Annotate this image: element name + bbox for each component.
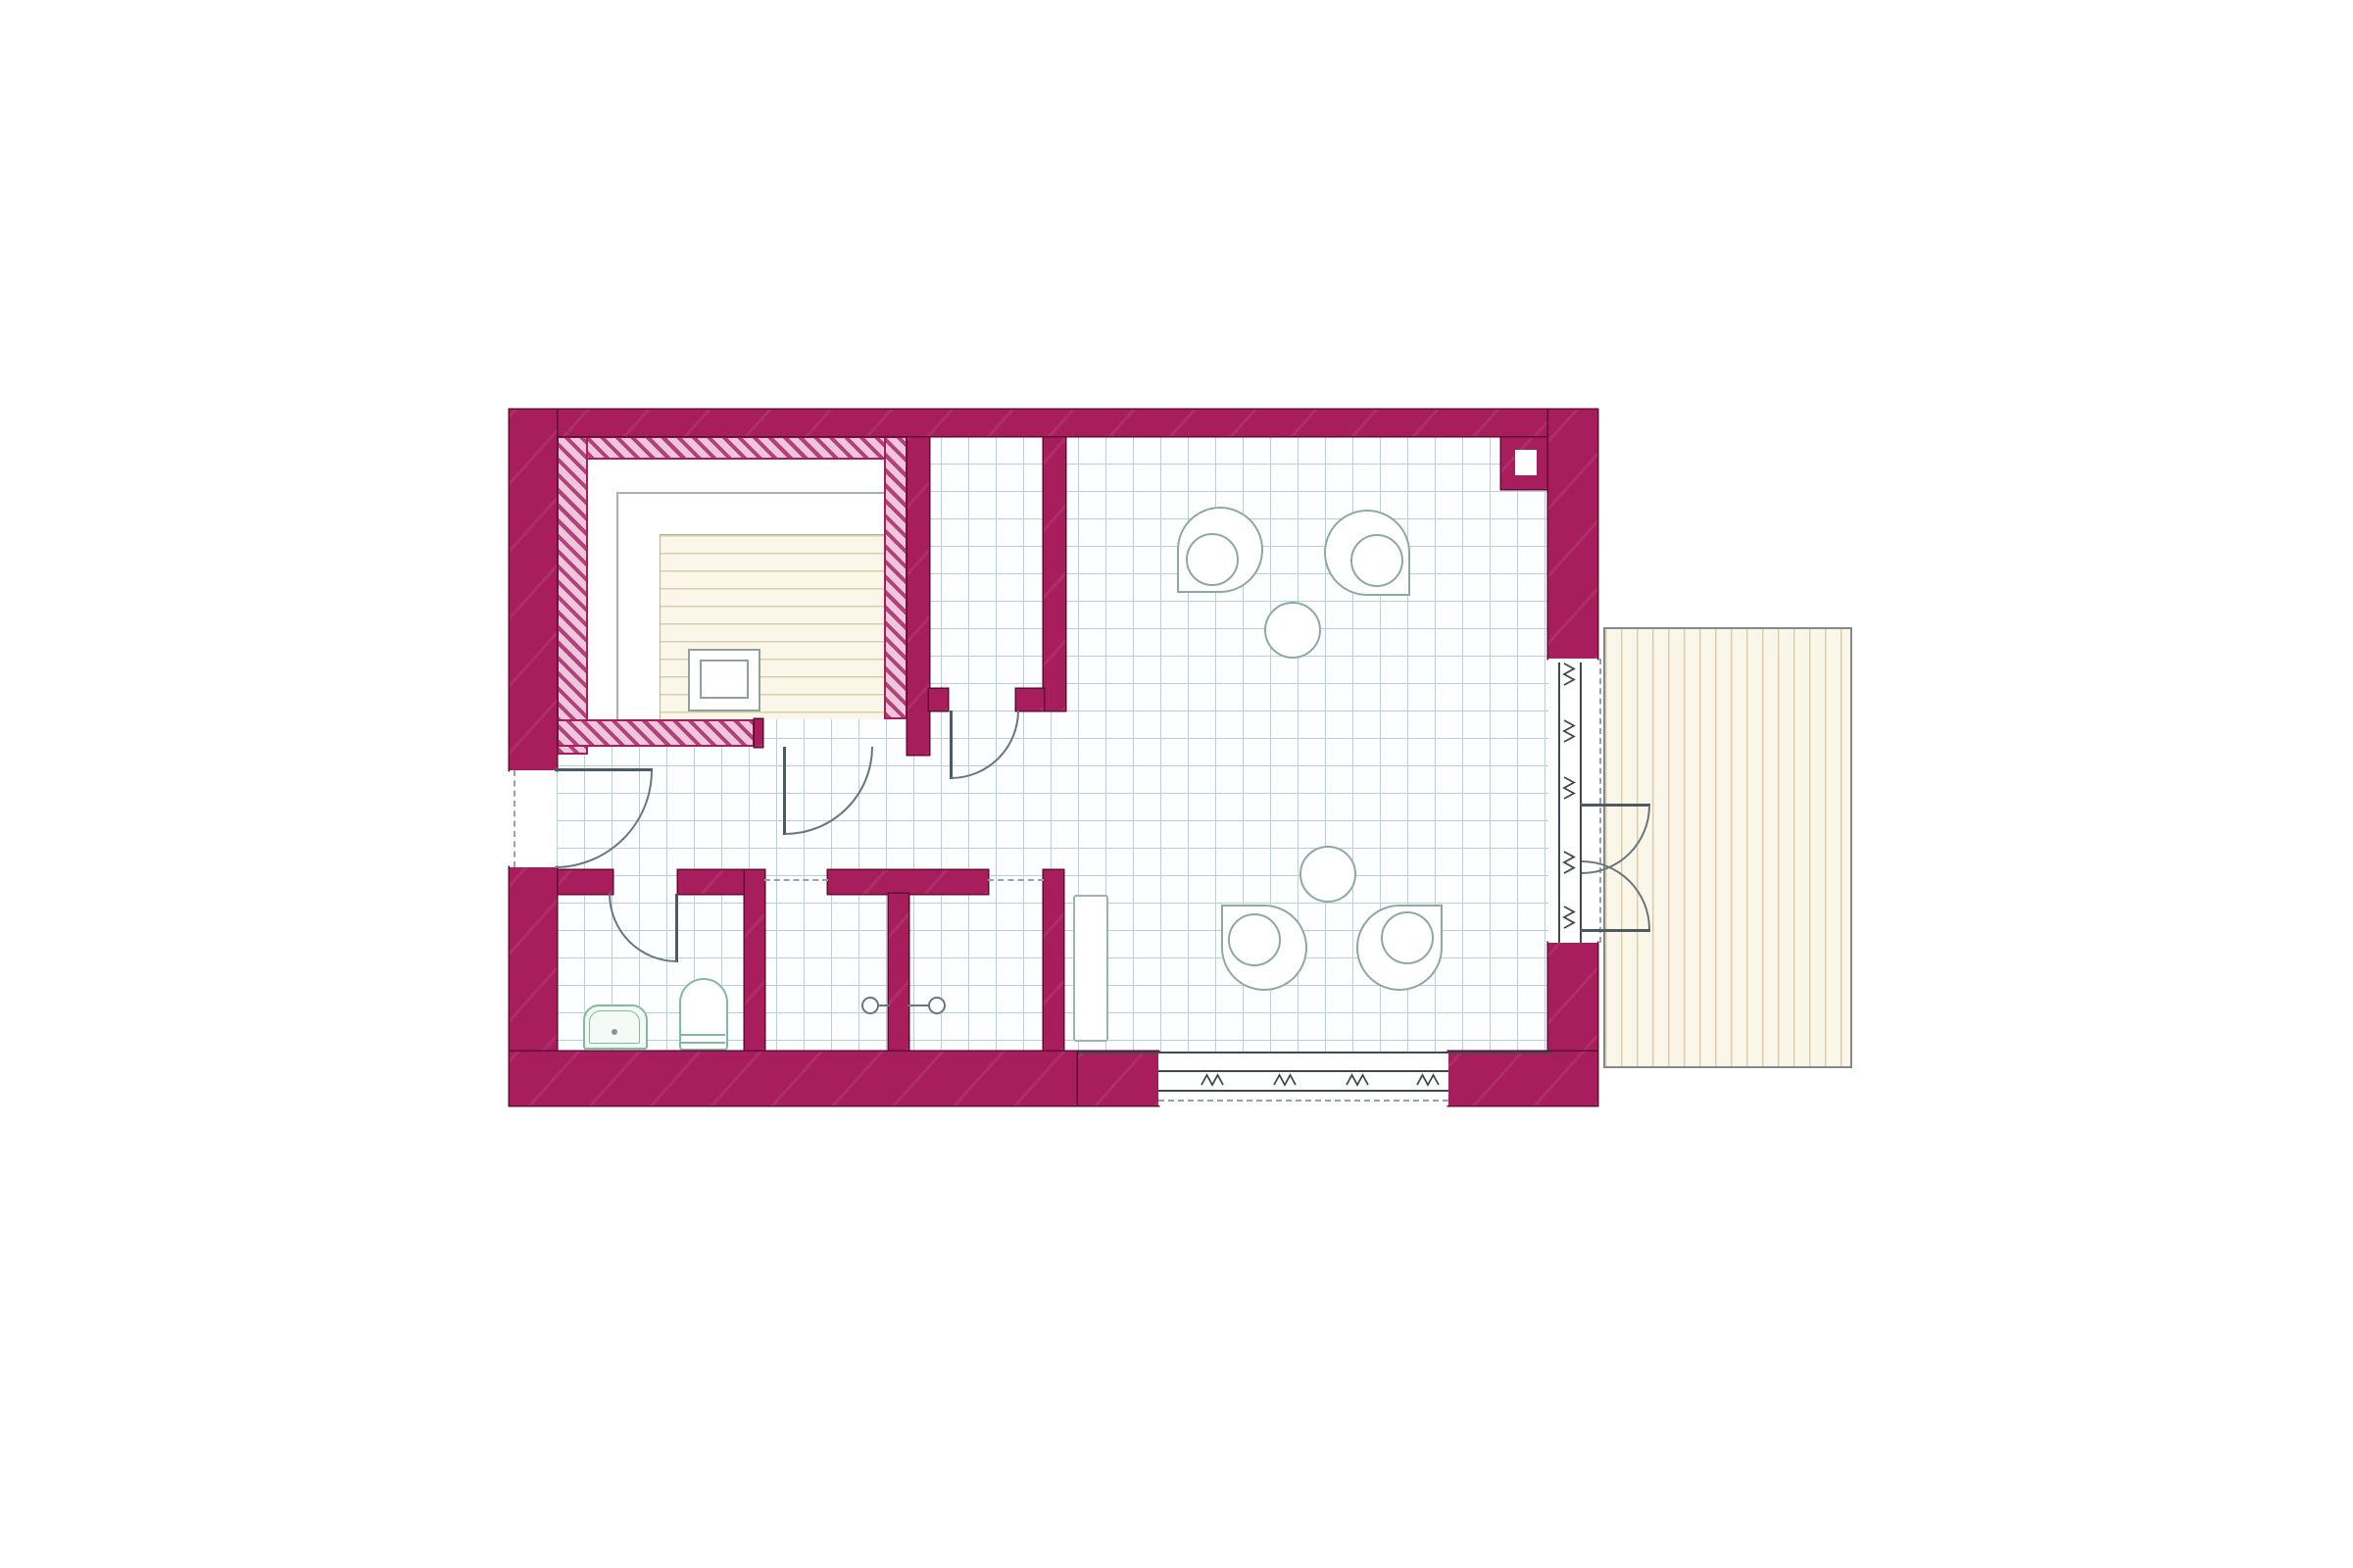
sauna-wall-right — [884, 436, 907, 719]
sauna-wall-bottom — [557, 719, 755, 747]
door-handle-right-stem — [907, 1004, 929, 1006]
door-handle-left-stem — [878, 1004, 890, 1006]
french-door-leaf-bottom — [1580, 929, 1650, 932]
chair-upper-right-seat — [1350, 534, 1403, 587]
chair-lower-right — [1356, 905, 1443, 991]
bottom-wall-right — [1448, 1052, 1597, 1105]
entry-opening-dash — [514, 770, 515, 867]
top-wall — [510, 410, 1597, 436]
vestibule-wall-bottom-left-stub — [929, 689, 948, 710]
table-upper — [1264, 602, 1321, 659]
right-wall-upper — [1548, 410, 1597, 659]
terrace-deck — [1603, 627, 1852, 1068]
sauna-wall-top — [557, 436, 907, 460]
table-lower — [1299, 846, 1356, 903]
sideboard-rect — [1073, 895, 1108, 1042]
terrace-window-frame-line-1 — [1558, 662, 1560, 943]
sauna-wall-left — [557, 436, 588, 755]
toilet-base-line-1 — [681, 1034, 725, 1036]
sauna-stove — [688, 649, 760, 711]
sauna-wall-bottom-endcap — [755, 719, 762, 747]
left-wall-upper — [510, 410, 557, 770]
sauna-stove-inner — [700, 660, 749, 699]
entry-opening — [510, 770, 557, 867]
right-window-mullion-glyph-1 — [1562, 662, 1576, 686]
toilet — [679, 978, 728, 1051]
wc-left-doorway-dash — [764, 879, 828, 881]
bottom-window-overhang-dash — [1158, 1100, 1448, 1102]
door-handle-right — [928, 997, 946, 1014]
right-window-mullion-glyph-5 — [1562, 906, 1576, 929]
bottom-window-mullion-glyph-3 — [1346, 1073, 1369, 1087]
right-window-mullion-glyph-4 — [1562, 851, 1576, 874]
bottom-window-frame-line-1 — [1158, 1070, 1448, 1072]
wc-band-top-wall-c — [828, 870, 988, 894]
right-window-mullion-glyph-3 — [1562, 776, 1576, 800]
chair-lower-left-seat — [1228, 913, 1281, 966]
sink — [583, 1004, 648, 1050]
chair-upper-left — [1177, 507, 1263, 593]
bottom-wall-left — [510, 1052, 1078, 1105]
chimney-flue-opening — [1515, 450, 1537, 475]
bathroom-wall-right — [745, 870, 764, 1052]
sink-drain — [612, 1029, 617, 1035]
chair-upper-left-seat — [1186, 533, 1239, 586]
living-room-floor-edge — [1078, 1052, 1552, 1053]
sink-basin — [589, 1010, 640, 1044]
chair-lower-right-seat — [1381, 911, 1434, 964]
toilet-base-line-2 — [681, 1042, 725, 1044]
sauna-bench-edge-vertical — [616, 492, 618, 719]
wc-band-top-wall-a — [555, 870, 613, 894]
floor-plan-canvas — [0, 0, 2353, 1568]
bottom-window-mullion-glyph-4 — [1416, 1073, 1440, 1087]
vestibule-wall-right — [1044, 436, 1065, 710]
bottom-window-mullion-glyph-1 — [1201, 1073, 1224, 1087]
wc-partition-wall — [889, 894, 908, 1052]
bottom-window-frame-line-2 — [1158, 1090, 1448, 1092]
chair-upper-right — [1324, 510, 1410, 596]
sauna-bench-edge-horizontal — [616, 492, 884, 494]
vestibule-wall-left — [907, 436, 929, 755]
right-window-mullion-glyph-2 — [1562, 719, 1576, 743]
bottom-wall-mid-stub — [1078, 1052, 1158, 1105]
vestibule-wall-bottom-right-stub — [1016, 689, 1044, 710]
wc-right-doorway-dash — [988, 879, 1044, 881]
door-handle-left — [861, 997, 879, 1014]
wc-wall-right — [1044, 870, 1063, 1052]
bottom-window-mullion-glyph-2 — [1273, 1073, 1297, 1087]
chair-lower-left — [1221, 905, 1307, 991]
